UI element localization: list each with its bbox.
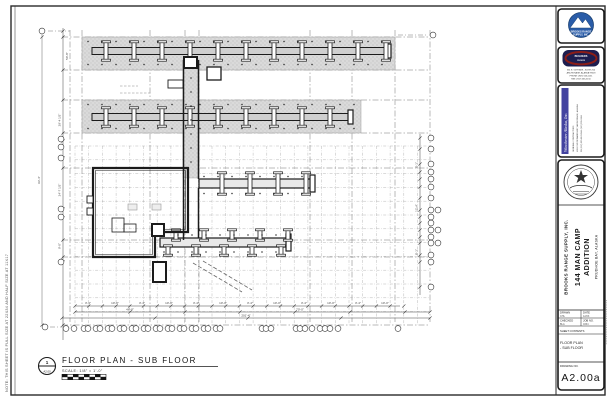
column xyxy=(300,108,304,126)
dim-label: 24'-7 1/2" xyxy=(58,184,62,197)
grid-bubble xyxy=(428,252,434,258)
pile-dot xyxy=(101,41,102,42)
pile-dot xyxy=(311,128,312,129)
column xyxy=(104,42,108,60)
pile-dot xyxy=(129,64,130,65)
pile-dot xyxy=(353,64,354,65)
grid-bubble xyxy=(327,326,333,332)
pile-dot xyxy=(217,193,218,194)
grid-bubble xyxy=(428,195,434,201)
detail-marker-number: 1 xyxy=(46,360,49,365)
column xyxy=(250,246,254,255)
pile-dot xyxy=(227,41,228,42)
pile-dot xyxy=(101,128,102,129)
grid-bubble xyxy=(205,326,211,332)
pile-dot xyxy=(203,176,204,177)
grid-bubble xyxy=(181,326,187,332)
pile-dot xyxy=(163,251,164,252)
pile-dot xyxy=(353,128,354,129)
column-flange xyxy=(102,41,111,43)
column-flange xyxy=(102,107,111,109)
pile-dot xyxy=(129,41,130,42)
firm-info-1: GENERAL CONTRACTORS xyxy=(572,125,575,152)
column-flange xyxy=(102,59,111,61)
pile-dot xyxy=(269,64,270,65)
column-flange xyxy=(242,59,251,61)
plan-scale: SCALE: 1/8" = 1'-0" xyxy=(62,369,103,373)
column xyxy=(272,108,276,126)
pile-dot xyxy=(367,41,368,42)
column-flange xyxy=(298,41,307,43)
pile-dot xyxy=(227,104,228,105)
grid-bubble xyxy=(428,169,434,175)
builders-address-3: PHONE: (907) 563-5151 xyxy=(570,76,594,78)
column-flange xyxy=(270,41,279,43)
column-flange xyxy=(256,239,265,241)
scale-bar-segment xyxy=(79,377,85,380)
scale-bar-segment xyxy=(84,374,90,377)
column-flange xyxy=(130,41,139,43)
pile-dot xyxy=(301,176,302,177)
column-flange xyxy=(284,239,293,241)
pile-dot xyxy=(261,251,262,252)
dim-label: 201'-4" xyxy=(241,313,250,317)
grid-bubble xyxy=(58,155,64,161)
pile-dot xyxy=(287,193,288,194)
scale-bar-segment xyxy=(68,377,74,380)
builders-address-1: 361 E. 56TH AVE., SUITE 200 xyxy=(567,69,596,72)
project-name-line1: 144 MAN CAMP xyxy=(575,228,582,286)
builders-logo-line2: CHOICE xyxy=(577,60,586,62)
column-flange xyxy=(277,245,286,247)
pile-dot xyxy=(269,41,270,42)
column-flange xyxy=(158,41,167,43)
grid-bubble xyxy=(435,227,441,233)
plan-title: FLOOR PLAN - SUB FLOOR xyxy=(62,356,197,365)
pile-dot xyxy=(241,41,242,42)
grid-bubble xyxy=(428,135,434,141)
pile-dot xyxy=(101,64,102,65)
dim-label: 8'-1" xyxy=(415,162,419,168)
wall-jog xyxy=(87,208,93,215)
column-flange xyxy=(186,107,195,109)
pile-dot xyxy=(339,128,340,129)
column xyxy=(216,42,220,60)
brooks-logo-line2: SUPPLY, INC. xyxy=(573,33,589,36)
column-flange xyxy=(382,41,391,43)
pile-dot xyxy=(115,104,116,105)
title-block: BROOKS RANGE SUPPLY, INC. BUILDERS CHOIC… xyxy=(558,9,607,390)
pile-dot xyxy=(157,128,158,129)
grid-bubble xyxy=(430,32,436,38)
grid-bubble xyxy=(63,326,69,332)
grid-bubble xyxy=(42,324,48,330)
column xyxy=(216,108,220,126)
dim-label: 3'-4" xyxy=(247,301,253,305)
column-flange xyxy=(214,125,223,127)
grid-bubble xyxy=(428,184,434,190)
pile-dot xyxy=(185,128,186,129)
column-flange xyxy=(214,59,223,61)
drawn-value: CHL xyxy=(560,315,566,318)
column-flange xyxy=(354,59,363,61)
column-flange xyxy=(130,59,139,61)
column-flange xyxy=(270,107,279,109)
grid-bubble xyxy=(58,144,64,150)
pile-dot xyxy=(129,104,130,105)
column-flange xyxy=(302,193,311,195)
column-flange xyxy=(382,59,391,61)
pile-dot xyxy=(241,64,242,65)
column-flange xyxy=(274,193,283,195)
pile-dot xyxy=(143,64,144,65)
column xyxy=(188,108,192,126)
project-name-line2: ADDITION xyxy=(584,238,591,276)
column-flange xyxy=(218,172,227,174)
dim-label: 9'-0" xyxy=(58,243,62,249)
pile-dot xyxy=(191,234,192,235)
column-flange xyxy=(218,193,227,195)
column xyxy=(160,42,164,60)
dim-label: 10'-0" xyxy=(219,301,227,305)
job-no-label: JOB NO. xyxy=(583,319,594,323)
dim-label: 10'-0" xyxy=(111,301,119,305)
grid-bubble xyxy=(58,214,64,220)
grid-bubble xyxy=(133,326,139,332)
grid-bubble xyxy=(268,326,274,332)
grid-bubble xyxy=(58,259,64,265)
dim-label: 10'-0" xyxy=(381,301,389,305)
small-stub-room xyxy=(168,80,183,88)
pile-dot xyxy=(301,193,302,194)
pile-dot xyxy=(255,128,256,129)
pile-dot xyxy=(273,193,274,194)
grid-bubble xyxy=(121,326,127,332)
column-flange xyxy=(242,41,251,43)
column xyxy=(132,108,136,126)
pile-dot xyxy=(190,147,191,148)
builders-address-4: FAX: (907) 563-5150 xyxy=(571,78,591,81)
grid-bubble xyxy=(435,240,441,246)
column-flange xyxy=(186,125,195,127)
grid-bubble xyxy=(169,326,175,332)
pile-dot xyxy=(227,64,228,65)
column-flange xyxy=(172,239,181,241)
grid-bubble xyxy=(97,326,103,332)
pile-dot xyxy=(325,64,326,65)
pile-dot xyxy=(297,41,298,42)
pile-dot xyxy=(190,133,191,134)
grid-bubble xyxy=(85,326,91,332)
beam-top xyxy=(92,48,390,55)
pile-dot xyxy=(203,193,204,194)
scale-bar-segment xyxy=(101,377,107,380)
floor-opening xyxy=(128,204,137,210)
pile-dot xyxy=(177,251,178,252)
pile-dot xyxy=(213,104,214,105)
column-flange xyxy=(246,193,255,195)
pile-dot xyxy=(255,41,256,42)
dim-label: 3'-4" xyxy=(85,301,91,305)
grid-bubble xyxy=(58,136,64,142)
pile-dot xyxy=(247,251,248,252)
pile-dot xyxy=(227,128,228,129)
pile-dot xyxy=(87,64,88,65)
pile-dot xyxy=(283,128,284,129)
column-flange xyxy=(158,125,167,127)
grid-bubble xyxy=(157,326,163,332)
small-room xyxy=(207,67,221,80)
pile-dot xyxy=(269,128,270,129)
pile-dot xyxy=(381,64,382,65)
pile-dot xyxy=(129,128,130,129)
column-flange xyxy=(326,59,335,61)
beam-endcap xyxy=(310,175,315,192)
grid-bubble xyxy=(428,161,434,167)
floor-opening xyxy=(152,204,161,210)
sheet-contents-line2: - SUB FLOOR xyxy=(560,346,583,350)
column xyxy=(304,173,308,194)
column-flange xyxy=(326,107,335,109)
grid-bubble xyxy=(309,326,315,332)
grid-bubble xyxy=(428,214,434,220)
dim-label: 3'-4" xyxy=(301,301,307,305)
sheet-size-note: NOTE: THIS SHEET IS FULL SIZE AT 22X34 A… xyxy=(5,254,9,392)
dim-label: 3'-4" xyxy=(355,301,361,305)
pile-dot xyxy=(213,41,214,42)
pile-dot xyxy=(259,193,260,194)
column xyxy=(220,173,224,194)
pile-dot xyxy=(245,176,246,177)
dim-label: 93'-4" xyxy=(37,176,41,184)
pile-dot xyxy=(185,104,186,105)
scale-bar-segment xyxy=(73,374,79,377)
column-flange xyxy=(164,245,173,247)
checked-label: CHECKED xyxy=(560,319,573,323)
pile-dot xyxy=(241,104,242,105)
pile-dot xyxy=(339,41,340,42)
pile-dot xyxy=(339,64,340,65)
drawn-label: DRAWN xyxy=(560,311,570,315)
pile-dot xyxy=(171,128,172,129)
grid-bubble xyxy=(435,207,441,213)
column-flange xyxy=(192,254,201,256)
pile-dot xyxy=(191,251,192,252)
dim-label: 3'-4" xyxy=(139,301,145,305)
pile-dot xyxy=(261,234,262,235)
column xyxy=(272,42,276,60)
dim-label: 3'-4" xyxy=(193,301,199,305)
builders-address-2: ANCHORAGE, ALASKA 99518 xyxy=(567,72,597,75)
scale-bar-segment xyxy=(90,377,96,380)
grid-bubble xyxy=(335,326,341,332)
dim-label: 29'-4 1/2" xyxy=(58,114,62,127)
column xyxy=(286,230,290,240)
column xyxy=(194,246,198,255)
column-flange xyxy=(186,41,195,43)
date-value: 12/03 xyxy=(583,315,590,318)
pile-dot xyxy=(205,234,206,235)
pile-dot xyxy=(259,176,260,177)
column-flange xyxy=(158,59,167,61)
pile-dot xyxy=(185,41,186,42)
pile-dot xyxy=(101,104,102,105)
pile-dot xyxy=(233,251,234,252)
pile-dot xyxy=(231,193,232,194)
pile-dot xyxy=(255,64,256,65)
pile-dot xyxy=(241,128,242,129)
firm-info-2: 4001 OLD SEWARD HWY, ANCHORAGE, ALASKA xyxy=(576,104,579,152)
column xyxy=(328,108,332,126)
pile-dot xyxy=(325,41,326,42)
pile-dot xyxy=(381,41,382,42)
checked-value: BLA xyxy=(560,323,565,326)
pile-dot xyxy=(87,128,88,129)
beam-endcap xyxy=(348,110,353,124)
dim-label: 46'-8" xyxy=(126,307,134,311)
pile-dot xyxy=(275,234,276,235)
column-flange xyxy=(246,172,255,174)
builders-logo-line1: BUILDERS xyxy=(575,55,588,58)
pile-dot xyxy=(269,104,270,105)
pile-dot xyxy=(87,104,88,105)
pile-dot xyxy=(157,64,158,65)
pile-dot xyxy=(115,64,116,65)
column xyxy=(104,108,108,126)
pile-dot xyxy=(205,251,206,252)
drawing-number: A2.00a xyxy=(561,372,600,384)
pile-dot xyxy=(213,128,214,129)
pile-dot xyxy=(275,251,276,252)
pile-dot xyxy=(283,104,284,105)
drawing-no-label: DRAWING NO. xyxy=(560,364,579,368)
grid-bubble xyxy=(428,259,434,265)
pile-dot xyxy=(190,77,191,78)
column-flange xyxy=(354,41,363,43)
grid-bubble xyxy=(39,28,45,34)
pile-dot xyxy=(367,64,368,65)
pile-dot xyxy=(297,64,298,65)
pile-dot xyxy=(311,64,312,65)
pile-dot xyxy=(199,41,200,42)
sheet-contents-label: SHEET CONTENTS xyxy=(560,329,585,333)
column-flange xyxy=(220,245,229,247)
shaft-box xyxy=(152,224,164,236)
shaft-box xyxy=(153,262,166,282)
dim-label: 10'-0" xyxy=(327,301,335,305)
pile-dot xyxy=(325,104,326,105)
column-flange xyxy=(130,125,139,127)
column-flange xyxy=(270,59,279,61)
pile-dot xyxy=(353,41,354,42)
project-location: PRUDHOE BAY, ALASKA xyxy=(595,234,599,279)
column-flange xyxy=(102,125,111,127)
column-flange xyxy=(200,239,209,241)
pile-dot xyxy=(283,64,284,65)
grid-bubble xyxy=(428,240,434,246)
column-flange xyxy=(192,245,201,247)
pile-dot xyxy=(157,104,158,105)
pile-dot xyxy=(199,128,200,129)
dim-label: 8'-1" xyxy=(415,249,419,255)
grid-bubble xyxy=(395,326,401,332)
vestibule-box xyxy=(184,57,197,68)
column-flange xyxy=(214,107,223,109)
column-flange xyxy=(220,254,229,256)
grid-bubble xyxy=(428,284,434,290)
pile-dot xyxy=(339,104,340,105)
pile-dot xyxy=(190,119,191,120)
pile-dot xyxy=(353,104,354,105)
pile-dot xyxy=(213,64,214,65)
grid-bubble xyxy=(302,326,308,332)
column xyxy=(248,173,252,194)
dim-label: 12'-4" xyxy=(415,204,419,212)
pile-dot xyxy=(233,234,234,235)
pile-dot xyxy=(115,41,116,42)
pile-dot xyxy=(143,128,144,129)
column-flange xyxy=(242,107,251,109)
column-flange xyxy=(130,107,139,109)
pile-dot xyxy=(247,234,248,235)
pile-dot xyxy=(115,128,116,129)
pile-dot xyxy=(287,176,288,177)
column-flange xyxy=(298,59,307,61)
column-flange xyxy=(270,125,279,127)
column-flange xyxy=(248,245,257,247)
pile-dot xyxy=(231,176,232,177)
pile-dot xyxy=(273,176,274,177)
grid-bubble xyxy=(428,234,434,240)
pile-dot xyxy=(177,234,178,235)
job-no-value: 0334 xyxy=(583,323,589,326)
scale-bar-segment xyxy=(95,374,101,377)
pile-dot xyxy=(245,193,246,194)
column xyxy=(222,246,226,255)
column-flange xyxy=(200,229,209,231)
dim-label: 70'-0" xyxy=(296,307,304,311)
grid-bubble xyxy=(428,220,434,226)
column-flange xyxy=(242,125,251,127)
grid-bubble xyxy=(428,207,434,213)
grid-bubble xyxy=(109,326,115,332)
column xyxy=(279,246,283,255)
pile-dot xyxy=(157,41,158,42)
wall-jog xyxy=(87,196,93,203)
pile-dot xyxy=(219,251,220,252)
column-flange xyxy=(214,41,223,43)
column-flange xyxy=(298,107,307,109)
grid-bubble xyxy=(193,326,199,332)
column-flange xyxy=(256,229,265,231)
column-flange xyxy=(274,172,283,174)
pile-dot xyxy=(143,104,144,105)
pile-dot xyxy=(219,234,220,235)
column xyxy=(132,42,136,60)
column-flange xyxy=(302,172,311,174)
column-flange xyxy=(248,254,257,256)
pile-dot xyxy=(87,41,88,42)
pile-dot xyxy=(311,104,312,105)
pile-dot xyxy=(199,104,200,105)
column xyxy=(356,42,360,60)
pile-dot xyxy=(190,91,191,92)
column xyxy=(300,42,304,60)
pile-dot xyxy=(171,104,172,105)
date-label: DATE xyxy=(583,311,590,315)
scale-bar-segment xyxy=(62,374,68,377)
firm-info-3: PH (907) 555-0123 FAX (907) 555-0124 xyxy=(580,114,583,152)
